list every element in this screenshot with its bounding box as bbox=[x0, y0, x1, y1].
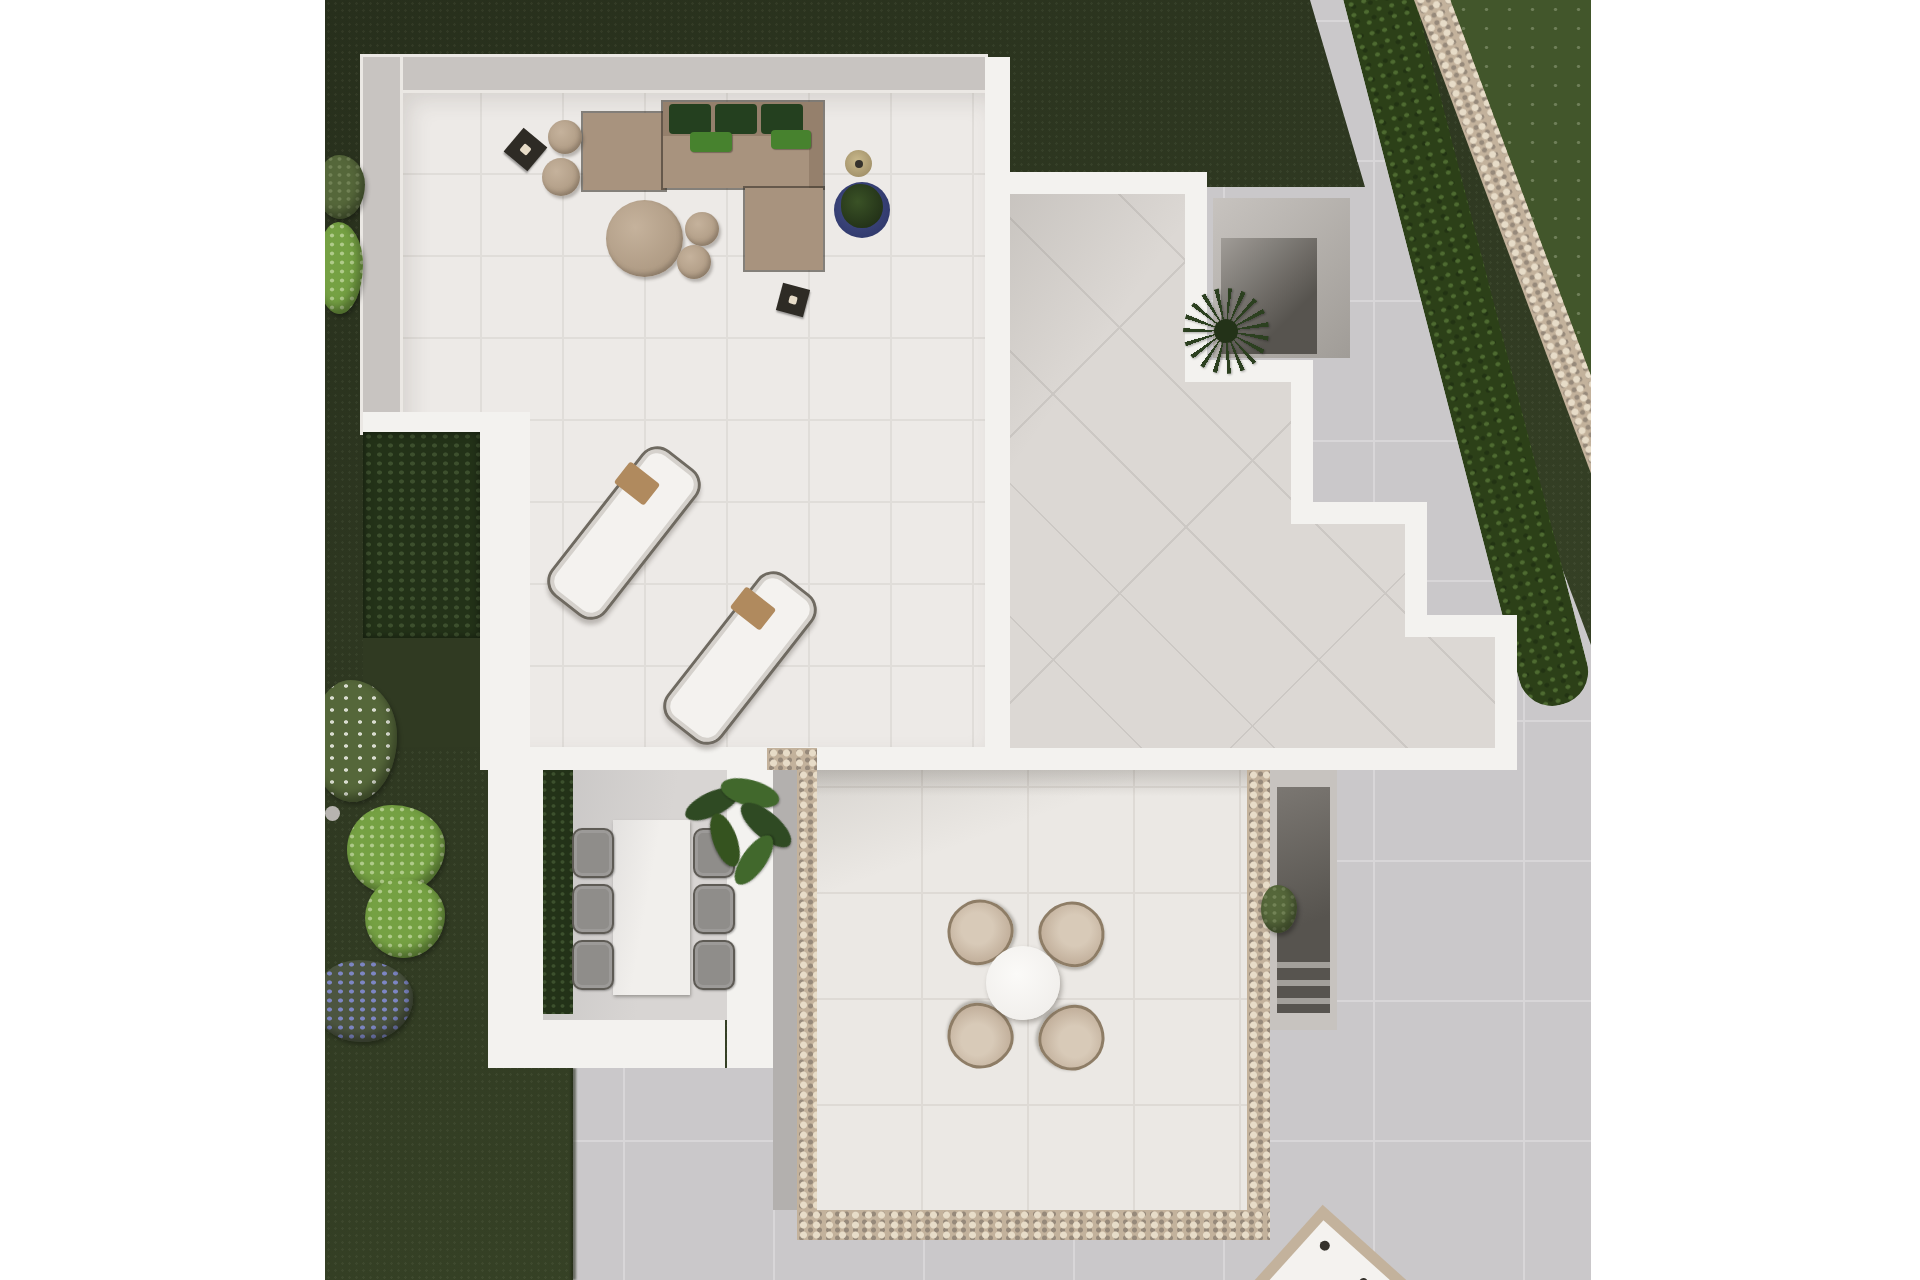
stair-step bbox=[1277, 962, 1330, 968]
terrace-parapet-north bbox=[363, 57, 985, 90]
dining-court-hedge bbox=[540, 770, 573, 1014]
stair-step bbox=[1277, 998, 1330, 1004]
terrace-parapet-south bbox=[482, 747, 1010, 770]
stair-step bbox=[1277, 980, 1330, 986]
court-wall-south bbox=[488, 1020, 725, 1068]
planter-wall-east bbox=[480, 412, 530, 770]
garden-pebble bbox=[325, 806, 340, 821]
dining-chair bbox=[572, 940, 614, 990]
pot-center bbox=[855, 160, 863, 168]
back-cushion bbox=[669, 104, 711, 134]
terrace-shadow bbox=[817, 770, 1247, 796]
pouf bbox=[677, 245, 711, 279]
corner-bolt bbox=[1318, 1239, 1332, 1253]
green-cushion bbox=[771, 130, 811, 149]
stone-trim-east bbox=[1247, 770, 1270, 1210]
dining-chair bbox=[572, 884, 614, 934]
green-cushion bbox=[690, 132, 732, 152]
screenshot-canvas bbox=[0, 0, 1920, 1280]
terrace-parapet-west bbox=[363, 57, 400, 432]
stone-trim-corner bbox=[767, 748, 817, 770]
aerial-villa-render bbox=[325, 0, 1591, 1280]
sofa-return bbox=[745, 188, 823, 270]
round-table bbox=[986, 946, 1060, 1020]
pouf bbox=[685, 212, 719, 246]
dining-table bbox=[613, 820, 690, 995]
sofa-chaise bbox=[583, 113, 665, 190]
sofa-arm bbox=[809, 102, 823, 188]
palm-core bbox=[1214, 319, 1238, 343]
dining-chair bbox=[572, 828, 614, 878]
corner-bolt bbox=[1357, 1276, 1370, 1280]
back-cushion bbox=[715, 104, 757, 134]
coffee-table bbox=[606, 200, 683, 277]
dining-chair bbox=[693, 884, 735, 934]
dining-chair bbox=[693, 940, 735, 990]
side-table bbox=[548, 120, 582, 154]
stone-trim-south bbox=[797, 1210, 1270, 1240]
stone-trim-west bbox=[797, 770, 817, 1210]
planter-greenery bbox=[363, 432, 480, 638]
side-table bbox=[542, 158, 580, 196]
lawn-edge bbox=[571, 1068, 576, 1280]
potted-plant bbox=[841, 184, 883, 228]
